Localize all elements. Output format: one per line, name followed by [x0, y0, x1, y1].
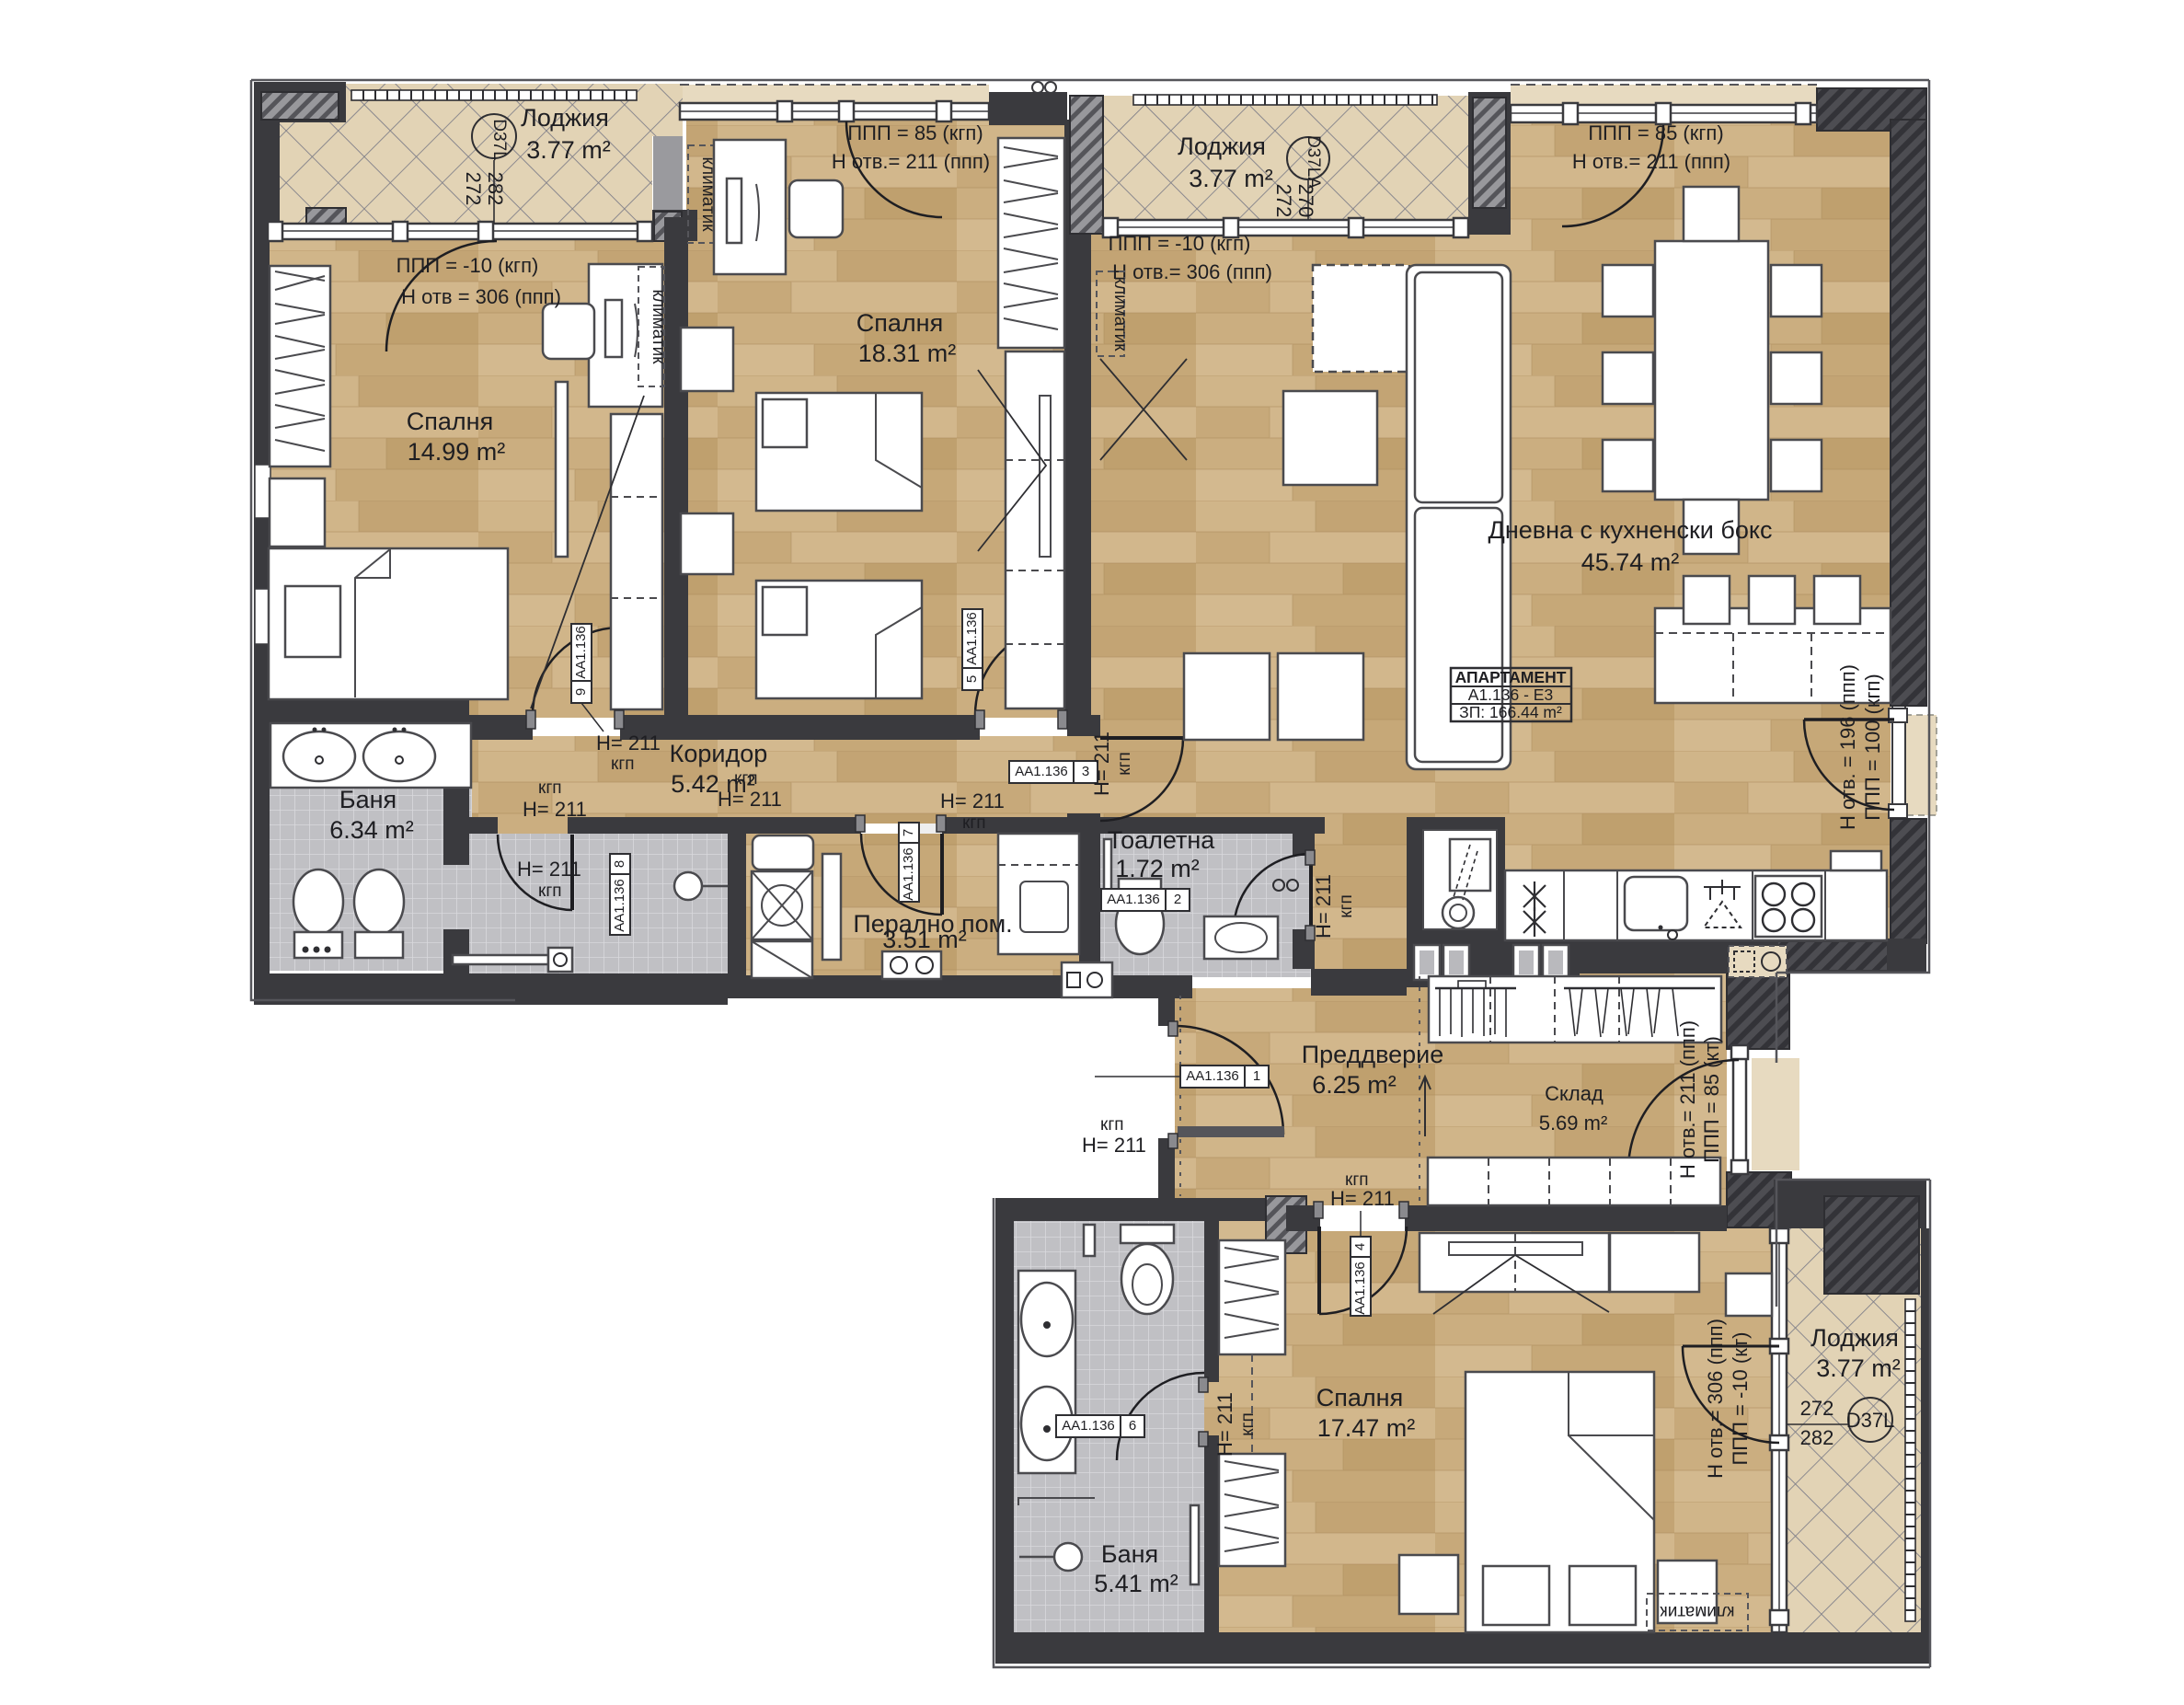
svg-text:Н= 211: Н= 211	[1082, 1134, 1146, 1157]
svg-text:Н= 211: Н= 211	[1330, 1187, 1395, 1210]
svg-text:5: 5	[964, 675, 980, 683]
svg-text:14.99 m²: 14.99 m²	[408, 438, 506, 466]
svg-text:9: 9	[573, 688, 589, 696]
svg-text:ППП = 85 (кгп): ППП = 85 (кгп)	[1588, 121, 1723, 144]
svg-text:5.69 m²: 5.69 m²	[1539, 1112, 1608, 1135]
svg-text:270: 270	[1294, 184, 1317, 218]
svg-text:климатик: климатик	[649, 289, 668, 364]
svg-text:Н= 211: Н= 211	[596, 732, 661, 755]
svg-text:Н отв = 306 (ппп): Н отв = 306 (ппп)	[401, 285, 561, 308]
svg-text:Лоджия: Лоджия	[521, 104, 609, 132]
svg-text:Баня: Баня	[339, 786, 397, 813]
svg-text:АА1.136: АА1.136	[901, 847, 916, 901]
svg-text:кгп: кгп	[611, 755, 635, 774]
svg-text:АА1.136: АА1.136	[1015, 764, 1068, 779]
svg-text:АА1.136: АА1.136	[1062, 1418, 1115, 1434]
svg-text:Н= 211: Н= 211	[523, 798, 587, 821]
svg-text:Н отв.= 306 (ппп): Н отв.= 306 (ппп)	[1704, 1319, 1727, 1479]
svg-text:272: 272	[1272, 184, 1295, 218]
svg-text:кгп: кгп	[538, 778, 562, 798]
svg-text:1.72 m²: 1.72 m²	[1115, 855, 1200, 882]
svg-text:климатик: климатик	[1660, 1602, 1735, 1621]
svg-text:1: 1	[1253, 1068, 1260, 1084]
svg-text:Н отв.= 211 (ппп): Н отв.= 211 (ппп)	[1572, 150, 1730, 173]
svg-text:6.25 m²: 6.25 m²	[1312, 1071, 1397, 1099]
svg-text:272: 272	[462, 172, 485, 206]
svg-text:Дневна с кухненски бокс: Дневна с кухненски бокс	[1489, 516, 1773, 544]
svg-text:АПАРТАМЕНТ: АПАРТАМЕНТ	[1455, 668, 1567, 686]
svg-text:Н отв.= 306 (ппп): Н отв.= 306 (ппп)	[1112, 260, 1272, 283]
svg-text:282: 282	[1800, 1426, 1834, 1449]
svg-text:Н= 211: Н= 211	[517, 858, 581, 881]
svg-text:кгп: кгп	[734, 769, 758, 789]
svg-text:D37L: D37L	[1846, 1409, 1895, 1432]
svg-text:кгп: кгп	[538, 881, 562, 901]
svg-text:Лоджия: Лоджия	[1810, 1324, 1899, 1352]
svg-text:ЗП: 166.44 m²: ЗП: 166.44 m²	[1459, 703, 1562, 721]
svg-text:Спалня: Спалня	[1316, 1384, 1403, 1411]
svg-text:282: 282	[484, 172, 507, 206]
svg-text:D37LA: D37LA	[1304, 135, 1323, 189]
svg-text:Спалня: Спалня	[407, 408, 493, 435]
svg-text:Тоалетна: Тоалетна	[1108, 826, 1216, 854]
svg-text:ППП = 85 (кгп): ППП = 85 (кгп)	[847, 121, 983, 144]
svg-text:ППП = -10 (кгп): ППП = -10 (кгп)	[1109, 232, 1251, 255]
svg-text:Преддверие: Преддверие	[1302, 1041, 1444, 1068]
svg-text:Н отв.= 211 (ппп): Н отв.= 211 (ппп)	[832, 150, 990, 173]
svg-text:7: 7	[901, 829, 916, 836]
svg-text:Н= 211: Н= 211	[940, 789, 1005, 812]
svg-text:ППП = 100 (кгп): ППП = 100 (кгп)	[1861, 674, 1884, 821]
svg-text:17.47 m²: 17.47 m²	[1317, 1414, 1416, 1442]
svg-text:АА1.136: АА1.136	[1352, 1261, 1368, 1315]
svg-text:кгп: кгп	[1238, 1412, 1258, 1436]
svg-text:Спалня: Спалня	[856, 309, 943, 337]
svg-text:Н= 211: Н= 211	[718, 788, 782, 811]
svg-text:6.34 m²: 6.34 m²	[329, 816, 414, 844]
svg-text:АА1.136: АА1.136	[573, 626, 589, 679]
svg-text:3: 3	[1082, 764, 1089, 779]
svg-text:климатик: климатик	[1110, 276, 1130, 351]
svg-text:2: 2	[1174, 892, 1181, 907]
svg-text:ППП = -10 (кт): ППП = -10 (кт)	[1729, 1331, 1752, 1465]
svg-text:Н= 211: Н= 211	[1213, 1392, 1236, 1457]
svg-text:272: 272	[1800, 1397, 1834, 1420]
svg-text:кгп: кгп	[962, 813, 986, 833]
svg-text:Коридор: Коридор	[670, 740, 768, 767]
svg-text:6: 6	[1129, 1418, 1136, 1434]
svg-text:АА1.136: АА1.136	[1186, 1068, 1239, 1084]
svg-text:ППП = -10 (кгп): ППП = -10 (кгп)	[397, 254, 539, 277]
svg-text:АА1.136: АА1.136	[964, 612, 980, 665]
svg-text:45.74 m²: 45.74 m²	[1581, 548, 1680, 576]
svg-text:3.77 m²: 3.77 m²	[1816, 1354, 1901, 1382]
svg-text:кгп: кгп	[1100, 1115, 1124, 1135]
svg-text:3.51 m²: 3.51 m²	[882, 926, 967, 953]
svg-text:ППП = 85 (кт): ППП = 85 (кт)	[1700, 1036, 1723, 1163]
svg-text:4: 4	[1352, 1243, 1368, 1250]
svg-text:3.77 m²: 3.77 m²	[526, 136, 611, 164]
svg-text:Баня: Баня	[1101, 1540, 1158, 1568]
svg-text:АА1.136: АА1.136	[612, 879, 627, 932]
svg-text:3.77 m²: 3.77 m²	[1189, 165, 1273, 192]
svg-text:D37L: D37L	[489, 119, 509, 160]
svg-text:Склад: Склад	[1545, 1082, 1604, 1105]
svg-text:АА1.136: АА1.136	[1107, 892, 1160, 907]
svg-text:Н отв. = 196 (ппп): Н отв. = 196 (ппп)	[1836, 664, 1859, 830]
svg-text:А1.136 - Е3: А1.136 - Е3	[1468, 685, 1553, 704]
svg-text:Н= 211: Н= 211	[1090, 732, 1113, 796]
svg-text:Н отв.= 211 (ппп): Н отв.= 211 (ппп)	[1676, 1020, 1699, 1179]
svg-text:5.41 m²: 5.41 m²	[1094, 1570, 1178, 1597]
svg-text:8: 8	[612, 860, 627, 868]
svg-text:кгп: кгп	[1337, 894, 1356, 918]
svg-text:кгп: кгп	[1115, 752, 1134, 776]
svg-text:18.31 m²: 18.31 m²	[858, 340, 957, 367]
svg-text:Лоджия: Лоджия	[1178, 132, 1266, 160]
